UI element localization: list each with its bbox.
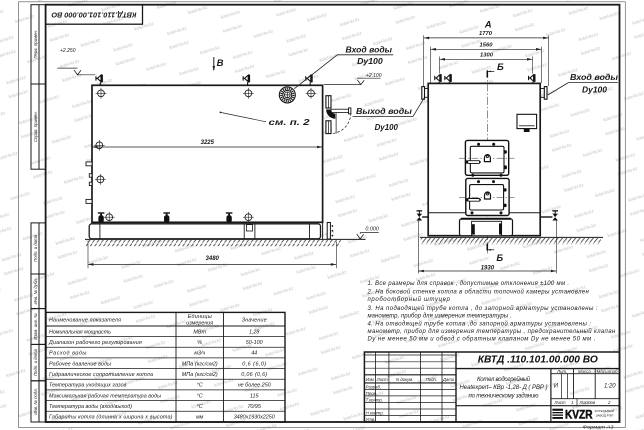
svg-text:Температура воды (вход/выход): Температура воды (вход/выход) (49, 404, 132, 410)
svg-text:0,06 (0,6): 0,06 (0,6) (241, 372, 267, 378)
svg-text:Подп. и дата: Подп. и дата (33, 234, 38, 262)
svg-text:Изм.: Изм. (366, 377, 375, 382)
svg-text:Б: Б (497, 62, 504, 73)
svg-text:°С: °С (197, 404, 203, 410)
svg-text:м3/ч: м3/ч (194, 351, 205, 357)
svg-text:мм: мм (196, 415, 204, 421)
svg-text:см. п. 2: см. п. 2 (269, 118, 311, 127)
svg-text:Справ. примен.: Справ. примен. (33, 111, 38, 142)
svg-text:Номинальная мощность: Номинальная мощность (49, 329, 111, 335)
svg-text:Подп. и дата: Подп. и дата (33, 349, 38, 377)
svg-text:Гидравлическое сопротивление к: Гидравлическое сопротивление котла (49, 372, 153, 378)
svg-text:Heatexpert– КВр -1,28- Д ( РВР: Heatexpert– КВр -1,28- Д ( РВР ) (460, 385, 548, 391)
svg-text:115: 115 (250, 393, 260, 399)
svg-text:%: % (197, 340, 202, 346)
svg-text:Максимальная рабочая температу: Максимальная рабочая температура воды (49, 393, 161, 399)
svg-text:Формат А3: Формат А3 (583, 424, 615, 429)
svg-text:МПа (кгс/см2): МПа (кгс/см2) (182, 372, 218, 378)
svg-text:°С: °С (197, 393, 203, 399)
svg-text:0.000: 0.000 (365, 227, 379, 233)
svg-text:МВт: МВт (193, 329, 206, 335)
svg-text:3. На подводящей трубе котла: 3. На подводящей трубе котла , до запорн… (368, 305, 598, 312)
svg-text:МПа (кгс/см2): МПа (кгс/см2) (182, 361, 218, 367)
svg-text:Единицы: Единицы (188, 314, 212, 320)
svg-text:Утв.: Утв. (366, 417, 376, 422)
svg-text:Дата: Дата (442, 377, 455, 382)
svg-text:KVZR: KVZR (565, 407, 593, 421)
svg-text:Dy100: Dy100 (357, 57, 383, 66)
svg-text:Пров.: Пров. (366, 391, 377, 396)
svg-text:44: 44 (251, 351, 257, 357)
svg-text:Масштаб: Масштаб (597, 369, 619, 374)
svg-text:манометр, прибор для измерения: манометр, прибор для измерения температу… (368, 328, 616, 335)
svg-text:не более 250: не более 250 (238, 383, 271, 389)
svg-text:Dy100: Dy100 (582, 85, 608, 94)
svg-text:В: В (217, 58, 224, 69)
svg-text:+2.250: +2.250 (60, 48, 76, 54)
svg-text:Вход воды: Вход воды (570, 73, 618, 82)
svg-text:Подп.: Подп. (426, 377, 437, 382)
svg-text:°С: °С (197, 383, 203, 389)
svg-text:Рабочее давление воды: Рабочее давление воды (49, 361, 111, 367)
svg-text:Габариты котла (длинна х ширин: Габариты котла (длинна х ширина х высота… (49, 415, 173, 421)
svg-text:50-100: 50-100 (246, 340, 263, 346)
svg-text:Т.контр.: Т.контр. (366, 397, 383, 402)
svg-text:Инв. № подл.: Инв. № подл. (33, 388, 38, 415)
svg-text:Инв. № дубл.: Инв. № дубл. (33, 278, 38, 304)
svg-text:Вход воды: Вход воды (346, 45, 393, 54)
svg-text:Температура уходящих газов: Температура уходящих газов (49, 383, 127, 389)
svg-text:Расход воды: Расход воды (49, 351, 86, 357)
svg-text:Лист: Лист (554, 400, 566, 405)
svg-text:70/95: 70/95 (247, 404, 261, 410)
svg-text:по техническому заданию: по техническому заданию (469, 393, 539, 399)
svg-text:Лит.: Лит. (556, 369, 567, 374)
svg-text:Значение: Значение (242, 317, 267, 323)
svg-text:Листов: Листов (579, 400, 596, 405)
svg-text:манометр, прибор для измерения: манометр, прибор для измерения температу… (368, 313, 512, 319)
svg-text:0,6 (6,0): 0,6 (6,0) (242, 361, 266, 367)
svg-text:1. Все размеры для справок ,: 1. Все размеры для справок , допустимые … (368, 281, 570, 287)
svg-text:КВТД .110.101.00.000 ВО: КВТД .110.101.00.000 ВО (478, 353, 598, 365)
svg-text:Лист: Лист (376, 377, 388, 382)
svg-text:1930: 1930 (481, 266, 495, 272)
svg-text:КОТЕЛЬНЫЙ: КОТЕЛЬНЫЙ (595, 409, 614, 413)
svg-text:Взам. инв. №: Взам. инв. № (33, 313, 38, 340)
svg-text:Разраб.: Разраб. (366, 384, 382, 389)
svg-text:Перв. примен.: Перв. примен. (33, 30, 38, 59)
svg-text:Котел водогрейный: Котел водогрейный (477, 376, 531, 383)
svg-text:3480х1930х2250: 3480х1930х2250 (234, 415, 275, 421)
svg-text:Dу не менее 50 мм и обвод с о: Dу не менее 50 мм и обвод с обратным кла… (368, 337, 596, 343)
svg-text:Н.контр.: Н.контр. (366, 410, 384, 415)
svg-text:N докум.: N докум. (396, 377, 413, 382)
svg-text:Б: Б (496, 253, 503, 264)
svg-text:Наименование показателя: Наименование показателя (49, 317, 121, 323)
svg-text:Dy100: Dy100 (375, 123, 399, 132)
svg-text:1300: 1300 (480, 53, 494, 59)
svg-text:пробоотборный штуцер: пробоотборный штуцер (368, 296, 451, 303)
svg-text:1,28: 1,28 (249, 329, 260, 335)
svg-text:3480: 3480 (206, 256, 220, 262)
svg-text:А: А (484, 20, 492, 31)
svg-text:измерения: измерения (186, 320, 213, 326)
svg-text:3225: 3225 (201, 140, 215, 146)
svg-text:4. На отводящей трубе котла ,: 4. На отводящей трубе котла ,до запорной… (368, 320, 592, 327)
svg-text:2. На боковой стенке котла в: 2. На боковой стенке котла в области топ… (367, 289, 590, 296)
svg-text:Диапазон рабочего регулировани: Диапазон рабочего регулирования (48, 340, 142, 346)
svg-text:Выход воды: Выход воды (356, 107, 412, 116)
svg-text:1:20: 1:20 (604, 384, 616, 390)
svg-text:Масса: Масса (578, 369, 591, 374)
svg-text:И: И (554, 384, 559, 390)
svg-text:1560: 1560 (480, 43, 494, 49)
svg-text:КВТД.110.101.00.000 ВО: КВТД.110.101.00.000 ВО (51, 11, 136, 20)
svg-text:1770: 1770 (479, 31, 493, 37)
svg-text:ЗАВОД РЭП: ЗАВОД РЭП (596, 413, 614, 417)
